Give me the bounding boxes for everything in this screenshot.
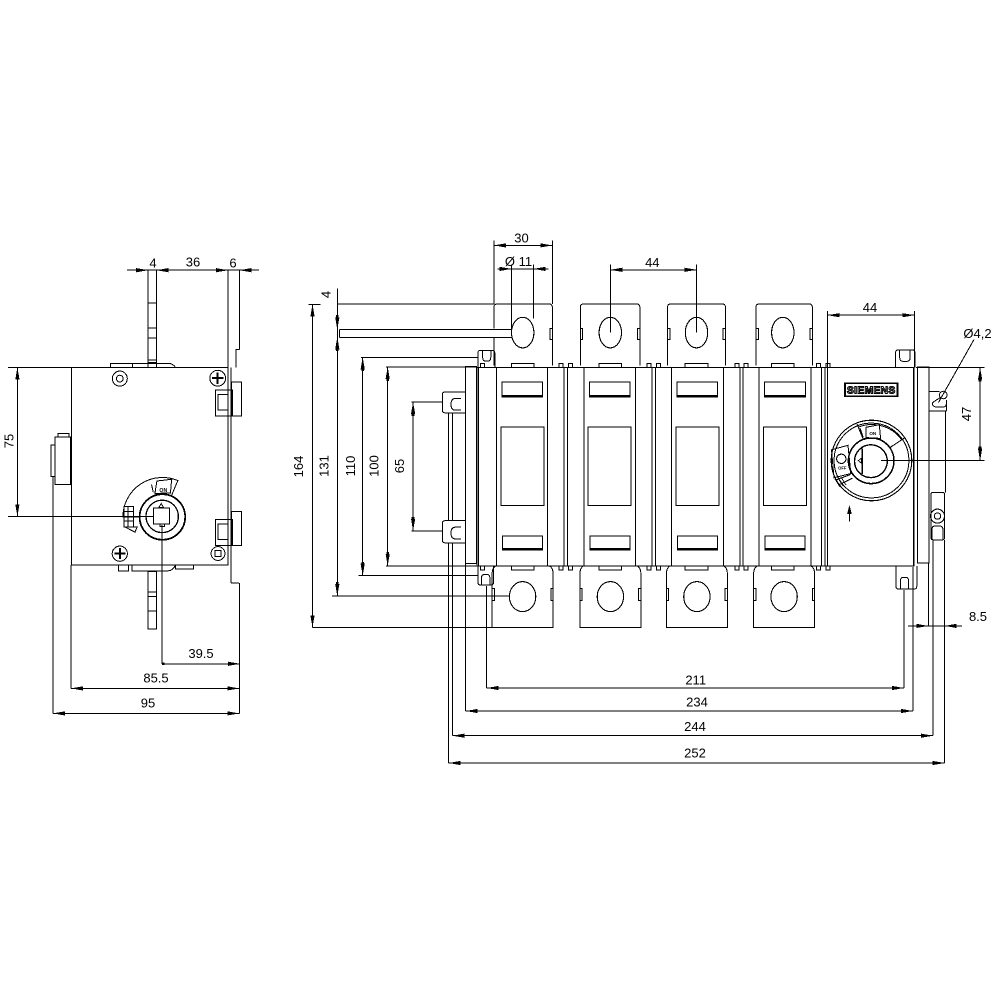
svg-text:SIEMENS: SIEMENS (847, 386, 896, 397)
svg-text:8.5: 8.5 (969, 609, 987, 624)
svg-text:Ø 11: Ø 11 (505, 254, 532, 269)
svg-text:47: 47 (959, 407, 974, 421)
svg-text:164: 164 (291, 456, 306, 478)
svg-text:30: 30 (514, 230, 528, 245)
svg-text:39.5: 39.5 (188, 646, 213, 661)
svg-text:100: 100 (367, 455, 382, 477)
svg-text:Ø4,2: Ø4,2 (963, 326, 991, 341)
svg-text:75: 75 (1, 434, 16, 448)
svg-text:44: 44 (863, 300, 877, 315)
svg-text:OFF: OFF (838, 466, 847, 471)
svg-text:110: 110 (343, 456, 358, 477)
svg-text:95: 95 (141, 695, 155, 710)
svg-text:36: 36 (186, 254, 200, 269)
svg-text:4: 4 (149, 255, 156, 270)
svg-text:211: 211 (685, 673, 706, 688)
svg-text:131: 131 (317, 455, 332, 477)
svg-text:244: 244 (684, 719, 706, 734)
svg-text:6: 6 (229, 255, 236, 270)
svg-text:ON: ON (159, 488, 167, 494)
svg-text:234: 234 (686, 695, 708, 710)
svg-text:ON: ON (869, 431, 877, 436)
svg-text:65: 65 (392, 459, 407, 473)
svg-text:44: 44 (645, 255, 659, 270)
svg-text:85.5: 85.5 (143, 670, 168, 685)
svg-text:4: 4 (319, 291, 334, 298)
svg-text:252: 252 (684, 746, 706, 761)
